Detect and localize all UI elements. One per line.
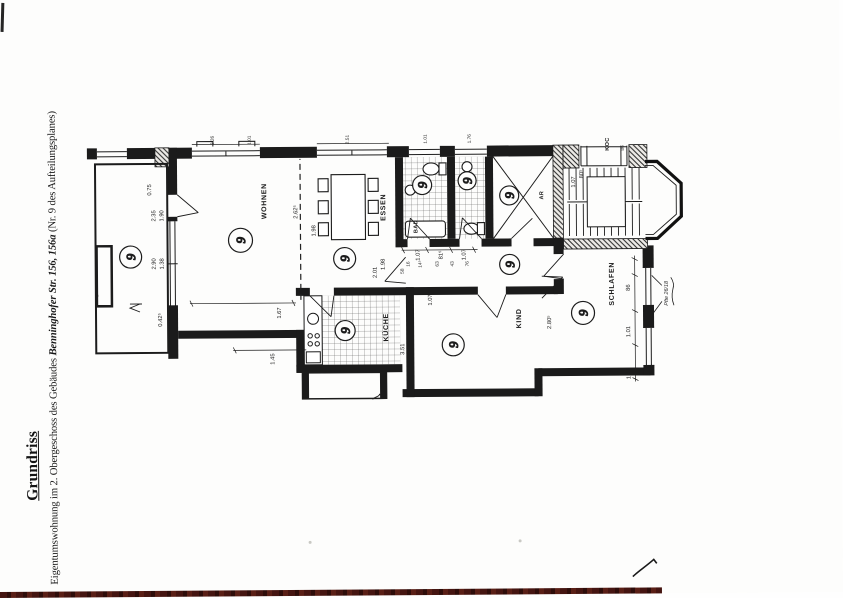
dim: 3.51 <box>400 344 406 355</box>
svg-text:9: 9 <box>503 261 517 268</box>
dim: 1.01 <box>626 326 632 337</box>
dim: 2.80⁵ <box>546 315 553 329</box>
dim: 80⁵ <box>578 169 585 178</box>
dim: 1.98 <box>381 259 387 270</box>
unit-circle-wc: 9 <box>458 172 476 190</box>
dim: 2.90 <box>152 258 158 269</box>
unit-circle-flur: 9 <box>500 254 520 274</box>
svg-text:9: 9 <box>416 181 430 188</box>
kitchen-fixtures <box>304 296 322 365</box>
svg-text:9: 9 <box>234 236 248 243</box>
dim: 2.51 <box>345 135 351 145</box>
dim: 16 <box>406 261 412 267</box>
bath-toilet <box>423 163 439 175</box>
room-label-kind: KIND <box>516 308 523 328</box>
dim: 0.42⁵ <box>157 312 164 326</box>
dim: 86 <box>620 145 626 151</box>
unit-circle-wohnen: 9 <box>228 228 252 252</box>
dim: 0.75 <box>147 184 153 195</box>
dim: 86 <box>626 284 632 290</box>
room-label-bad: BAD <box>413 220 419 233</box>
chair <box>368 200 378 213</box>
chair <box>368 222 378 235</box>
dim: 1.07 <box>571 176 577 187</box>
dining-table <box>331 174 365 239</box>
unit-circle-kind: 9 <box>442 334 464 356</box>
balcony-planter <box>97 246 112 306</box>
unit-circle-schlafen: 9 <box>571 301 594 324</box>
dim: 1.01 <box>247 135 253 145</box>
dim: 1.07 <box>428 294 434 305</box>
dim: 1.98 <box>311 225 317 236</box>
dim: 63 <box>435 261 441 267</box>
dim: 1.38 <box>160 258 166 269</box>
dim: 58 <box>400 268 406 274</box>
room-label-ar: AR <box>539 191 545 200</box>
chair <box>318 179 328 192</box>
dim: 1.07 <box>416 249 422 260</box>
chair <box>318 223 328 236</box>
room-label-schlafen: SCHLAFEN <box>609 262 616 306</box>
svg-text:9: 9 <box>576 309 590 316</box>
dim: 1.90 <box>159 210 165 221</box>
balcony-mark <box>130 304 142 312</box>
svg-text:9: 9 <box>124 253 138 260</box>
unit-circle-kueche: 9 <box>335 321 355 341</box>
dim: 2.62⁵ <box>292 204 299 218</box>
kitchen-sink <box>308 313 319 324</box>
entrance-door <box>544 254 564 279</box>
svg-text:9: 9 <box>338 255 352 262</box>
dim: 1.76 <box>467 134 473 144</box>
kind-door <box>478 294 506 317</box>
dim: 81⁵ <box>438 250 445 259</box>
svg-text:9: 9 <box>503 192 517 199</box>
dim: 1.67 <box>277 307 283 318</box>
dim: 76 <box>465 261 471 267</box>
dim: 2.26 <box>210 135 216 145</box>
annotation-scribble <box>671 277 674 305</box>
open-plan-dashed-line <box>300 159 301 300</box>
dim: 1.45 <box>270 353 276 364</box>
scan-pen-mark <box>633 559 657 576</box>
wc-toilet <box>464 223 479 234</box>
dim: 2.01 <box>373 267 379 278</box>
annotation-text: Pfte 26/18 <box>664 281 670 306</box>
svg-text:9: 9 <box>339 327 353 334</box>
floor-plan: 9 9 9 9 9 9 9 9 9 9 WOHNEN ESSEN KÜCHE B… <box>0 0 843 598</box>
room-label-kueche: KÜCHE <box>381 313 390 341</box>
svg-text:9: 9 <box>447 341 461 348</box>
balcony-door <box>177 195 198 217</box>
dining-set <box>318 174 378 239</box>
room-label-essen: ESSEN <box>380 194 387 221</box>
dim: 1.01 <box>423 134 429 144</box>
room-label-neighbor: KOC <box>605 137 611 150</box>
storage-door <box>511 218 532 238</box>
scan-page: Grundriss Eigentumswohnung im 2. Oberges… <box>0 0 843 598</box>
unit-circle-ar: 9 <box>500 186 519 205</box>
tiled-floors <box>303 157 486 365</box>
unit-circle-essen: 9 <box>334 248 356 270</box>
stair-eye <box>587 177 625 227</box>
svg-text:9: 9 <box>461 177 475 184</box>
room-label-wohnen: WOHNEN <box>261 183 268 219</box>
dim: 1.07 <box>462 249 468 260</box>
dim: 1.01 <box>626 368 632 379</box>
chair <box>318 201 328 214</box>
dim: 43 <box>450 261 456 267</box>
chair <box>368 178 378 191</box>
unit-circle-bad: 9 <box>413 175 432 194</box>
unit-circle-balcony: 9 <box>120 246 142 268</box>
kitchen-loggia <box>302 372 386 400</box>
bay-window <box>645 161 682 238</box>
dim: 2.35 <box>151 210 157 221</box>
scanned-document: Grundriss Eigentumswohnung im 2. Oberges… <box>0 0 843 598</box>
dim: 14⁵ <box>418 260 424 267</box>
wc-sink <box>462 162 472 172</box>
